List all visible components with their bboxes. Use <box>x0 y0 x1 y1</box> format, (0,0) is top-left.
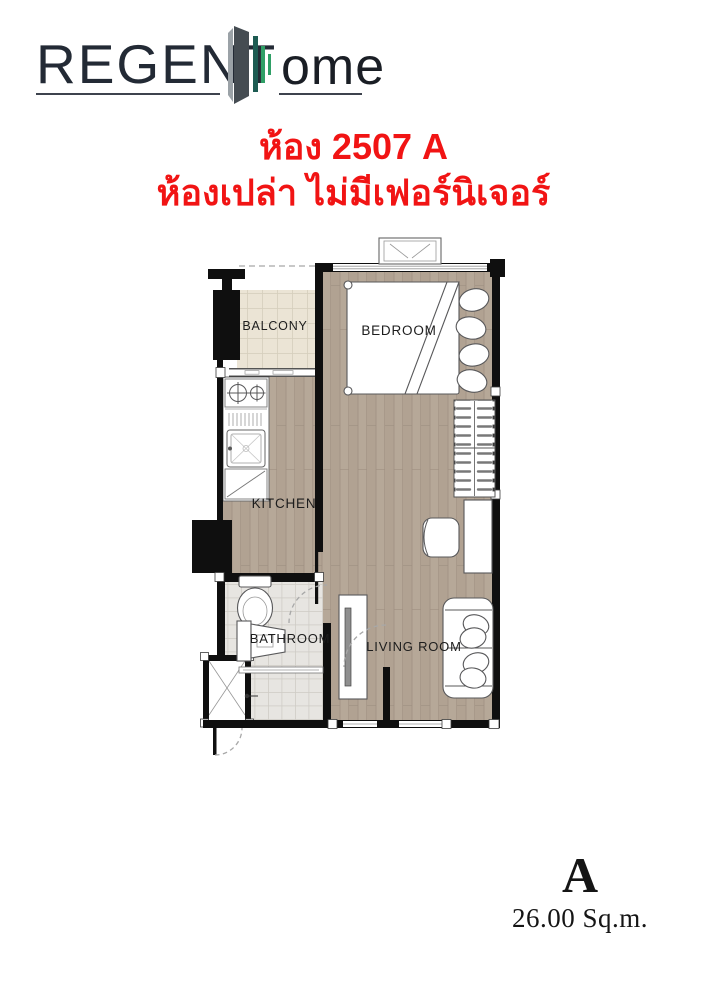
room-number-title: ห้อง 2507 A <box>0 124 707 170</box>
desk <box>464 500 492 573</box>
unit-area-label: 26.00 Sq.m. <box>480 902 680 935</box>
toilet <box>238 576 273 628</box>
building-skyline-icon <box>224 24 280 106</box>
shaft-block <box>192 520 232 573</box>
living-room-wall-stub <box>383 667 390 720</box>
tower-side-face <box>228 28 233 102</box>
unit-type-label: A <box>480 848 680 902</box>
counter-return <box>225 469 267 499</box>
kitchen-counter <box>223 377 269 501</box>
logo: REGENT ome <box>0 0 707 120</box>
balcony-label: BALCONY <box>242 319 307 333</box>
bed <box>344 281 491 395</box>
signal-bar-tall <box>253 36 258 92</box>
unit-info: A 26.00 Sq.m. <box>480 848 680 935</box>
shower-valve <box>245 694 249 698</box>
bathroom-label: BATHROOM <box>250 631 331 646</box>
room-condition-title: ห้องเปล่า ไม่มีเฟอร์นิเจอร์ <box>0 170 707 216</box>
bedroom-window <box>333 264 487 271</box>
tv-console <box>339 595 367 699</box>
entrance-door-leaf <box>213 728 217 755</box>
signal-bar-medium <box>261 46 265 83</box>
tv <box>345 608 351 686</box>
ac-unit <box>379 238 441 264</box>
bedroom-label: BEDROOM <box>361 323 436 338</box>
signal-bar-short <box>268 54 271 75</box>
balcony-window <box>229 368 315 377</box>
kitchen-label: KITCHEN <box>252 496 317 511</box>
floorplan: BALCONY BEDROOM KITCHEN BATHROOM LIVING … <box>187 233 512 793</box>
service-shaft <box>201 653 254 729</box>
chair <box>423 518 459 557</box>
kitchen-sink <box>227 430 265 467</box>
tower-front-face <box>234 26 249 104</box>
page: REGENT ome ห้อง 2507 A ห้องเปล่า ไม่มีเฟ… <box>0 0 707 1000</box>
stove-burners <box>225 379 267 407</box>
listing-titles: ห้อง 2507 A ห้องเปล่า ไม่มีเฟอร์นิเจอร์ <box>0 124 707 216</box>
brand-home-text: ome <box>281 38 385 96</box>
logo-underline-left <box>36 93 220 95</box>
balcony-column <box>213 290 240 360</box>
wardrobe <box>454 400 495 497</box>
logo-underline-right <box>279 93 362 95</box>
living-room-label: LIVING ROOM <box>366 639 461 654</box>
entrance-door-swing <box>215 728 242 755</box>
